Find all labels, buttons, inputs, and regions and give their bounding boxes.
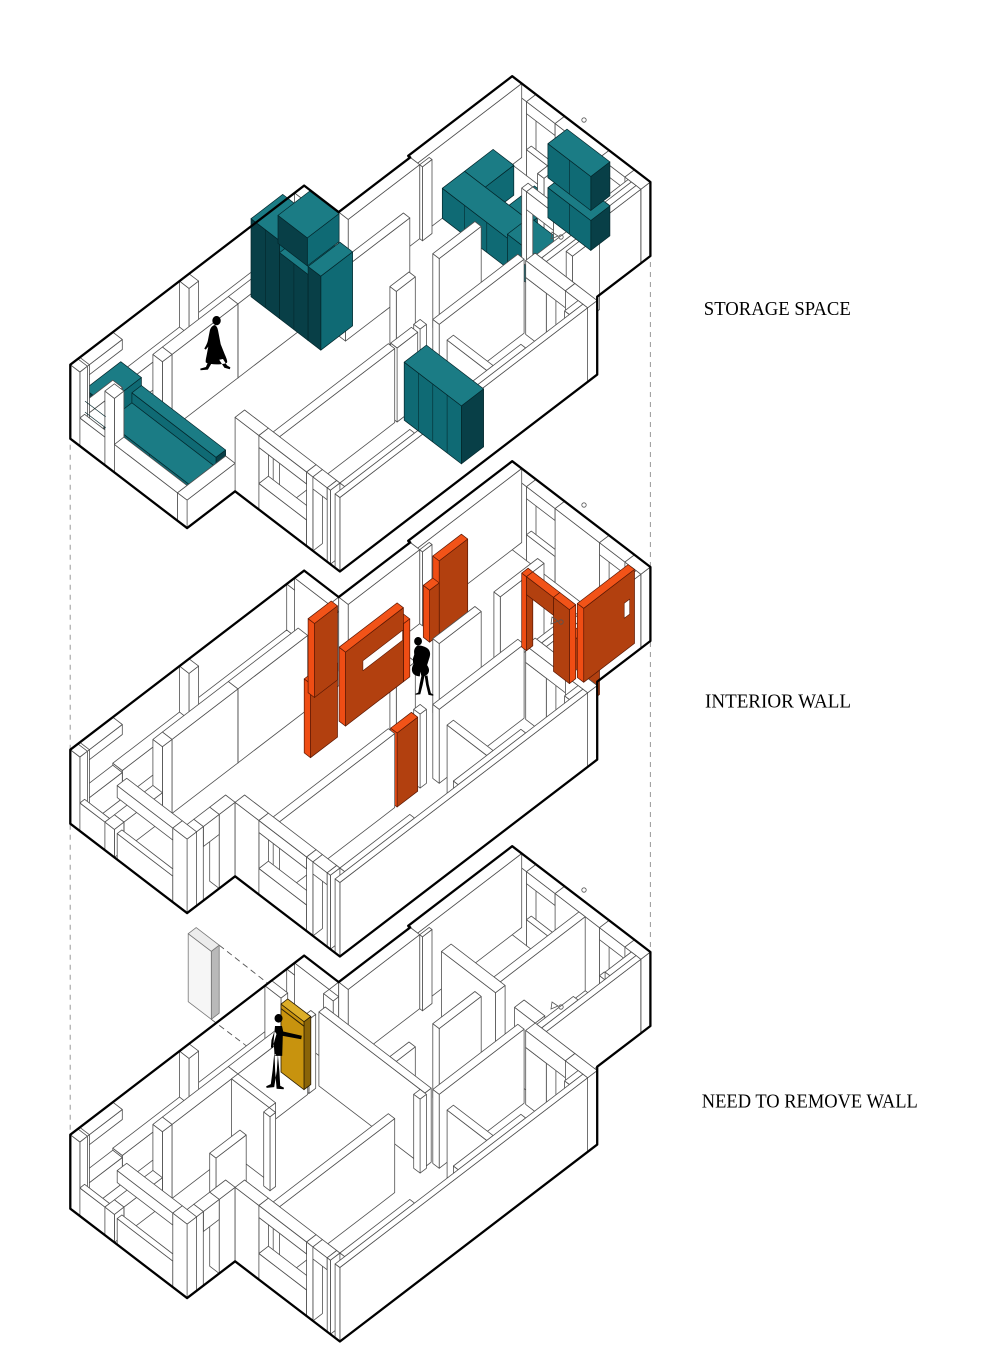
svg-text:INTERIOR WALL: INTERIOR WALL [705, 691, 851, 713]
svg-text:STORAGE SPACE: STORAGE SPACE [704, 298, 851, 320]
svg-text:NEED TO REMOVE WALL: NEED TO REMOVE WALL [702, 1091, 918, 1113]
